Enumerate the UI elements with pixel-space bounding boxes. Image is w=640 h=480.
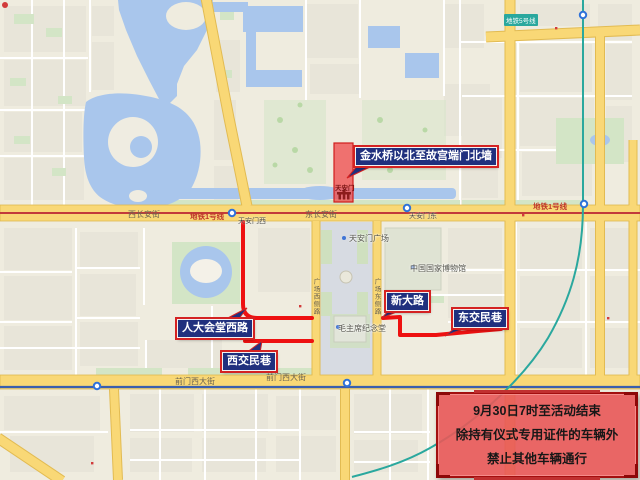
notice-line-2: 除持有仪式专用证件的车辆外 (456, 428, 619, 442)
museum-block (385, 228, 441, 290)
callout-west-jiaomin-lane: 西交民巷 (222, 352, 276, 371)
notice-corner-bl (436, 464, 450, 478)
notice-line-3: 禁止其他车辆通行 (487, 452, 587, 466)
notice-line-1: 9月30日7时至活动结束 (473, 404, 601, 418)
notice-corner-br (624, 464, 638, 478)
ncpa-egg (190, 259, 222, 283)
memorial-hall-block (334, 316, 366, 342)
notice-corner-tl (436, 392, 450, 406)
traffic-notice-box: 9月30日7时至活动结束 除持有仪式专用证件的车辆外 禁止其他车辆通行 (436, 392, 638, 478)
monument-circle (340, 271, 352, 283)
callout-restricted-zone: 金水桥以北至故宫端门北墙 (355, 147, 497, 166)
notice-frame-tab-top (474, 390, 601, 393)
notice-corner-tr (624, 392, 638, 406)
callout-xin-da-lu: 新大路 (386, 292, 429, 311)
callout-rendahuitang-west-rd: 人大会堂西路 (177, 319, 253, 338)
map-screenshot: 西长安街 地铁1号线 东长安街 地铁1号线 前门西大街 前门西大街 广场西侧路 … (0, 0, 640, 480)
callout-east-jiaomin-lane: 东交民巷 (453, 309, 507, 328)
